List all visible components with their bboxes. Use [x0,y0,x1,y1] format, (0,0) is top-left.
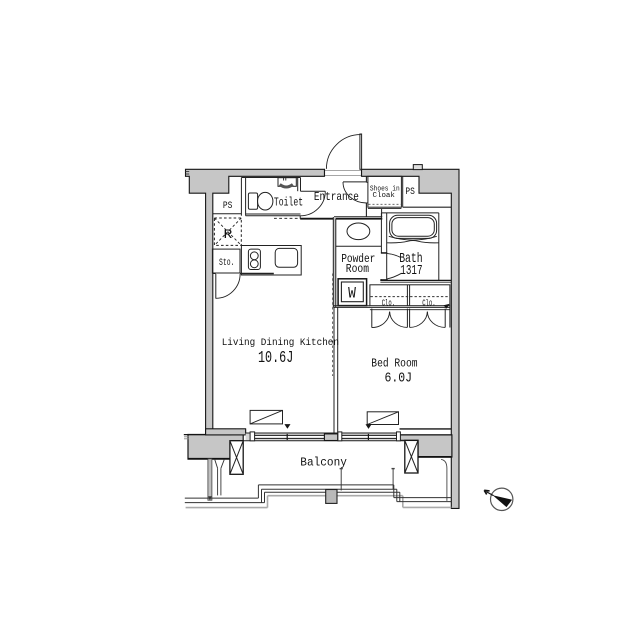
svg-text:R: R [224,227,233,242]
svg-text:PS: PS [223,200,233,211]
svg-text:Room: Room [346,262,369,276]
svg-text:Toilet: Toilet [274,196,303,210]
svg-text:Living Dining Kitchen: Living Dining Kitchen [222,337,339,348]
svg-text:1317: 1317 [400,264,422,279]
svg-text:Clo.: Clo. [422,298,435,308]
svg-text:6.0J: 6.0J [385,372,413,387]
svg-text:Clo.: Clo. [382,298,395,308]
svg-text:Cloak: Cloak [373,192,395,200]
svg-text:PS: PS [405,186,415,197]
svg-text:Bed Room: Bed Room [371,356,417,370]
svg-text:Balcony: Balcony [300,455,347,469]
svg-text:10.6J: 10.6J [258,348,293,367]
svg-text:Entrance: Entrance [314,190,359,204]
svg-text:Sto.: Sto. [219,257,234,269]
svg-text:W: W [348,285,356,303]
